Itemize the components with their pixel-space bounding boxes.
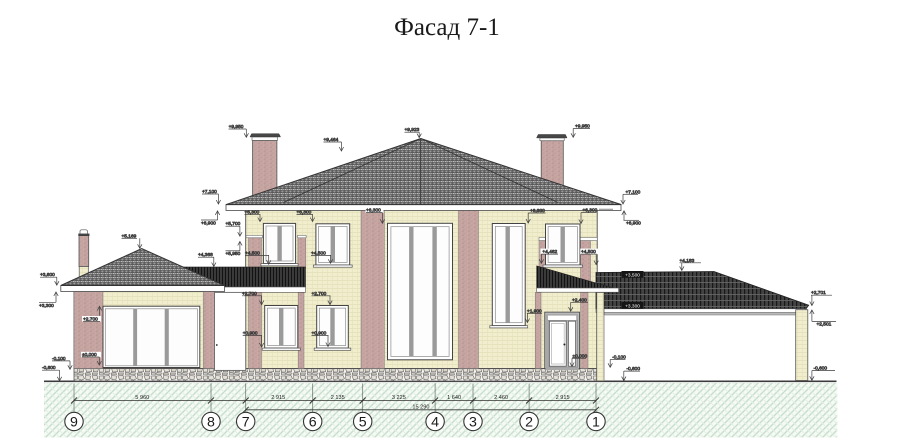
svg-text:15 290: 15 290: [412, 405, 429, 411]
svg-text:Фасад 7-1: Фасад 7-1: [394, 14, 500, 41]
svg-text:4: 4: [431, 415, 439, 431]
svg-text:5 960: 5 960: [135, 395, 149, 401]
svg-text:2 135: 2 135: [331, 395, 345, 401]
svg-text:6: 6: [309, 415, 317, 431]
svg-text:+3,300: +3,300: [625, 303, 640, 309]
svg-text:5: 5: [359, 415, 367, 431]
svg-text:2 915: 2 915: [271, 395, 285, 401]
svg-text:2: 2: [525, 415, 533, 431]
svg-text:+6,900: +6,900: [201, 220, 216, 226]
svg-text:+6,900: +6,900: [626, 220, 641, 226]
svg-text:3 225: 3 225: [392, 395, 406, 401]
svg-text:+2,501: +2,501: [817, 321, 832, 327]
svg-text:8: 8: [207, 415, 215, 431]
svg-text:9: 9: [70, 415, 78, 431]
svg-text:2 915: 2 915: [556, 395, 570, 401]
svg-text:+3,300: +3,300: [39, 303, 54, 309]
svg-text:3: 3: [469, 415, 477, 431]
svg-text:+3,500: +3,500: [625, 272, 640, 278]
svg-text:+5,950: +5,950: [226, 251, 241, 257]
svg-text:1 640: 1 640: [447, 395, 461, 401]
svg-text:2 460: 2 460: [494, 395, 508, 401]
svg-text:7: 7: [242, 415, 250, 431]
svg-text:1: 1: [592, 415, 600, 431]
